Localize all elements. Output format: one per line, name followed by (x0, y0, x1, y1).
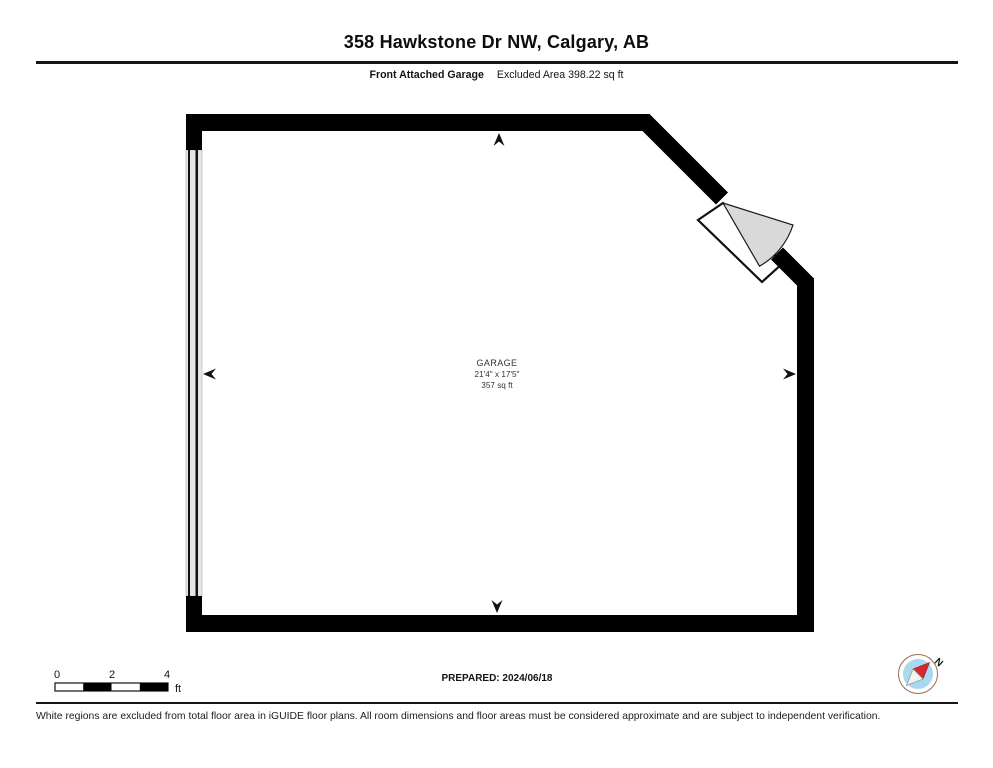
scale-tick-4: 4 (164, 669, 170, 681)
room-area: 357 sq ft (481, 381, 513, 390)
corner-block-bottom-left (186, 596, 202, 632)
room-dimensions: 21'4" x 17'5" (475, 370, 520, 379)
footer-disclaimer: White regions are excluded from total fl… (36, 711, 956, 722)
scale-tick-0: 0 (54, 669, 60, 681)
floorplan-page: 358 Hawkstone Dr NW, Calgary, AB Front A… (0, 0, 993, 768)
arrow-left-icon (203, 369, 216, 380)
wall-top-and-diagonal (186, 123, 722, 199)
arrow-down-icon (492, 600, 503, 613)
scale-unit-label: ft (175, 683, 181, 695)
room-label: GARAGE 21'4" x 17'5" 357 sq ft (475, 358, 520, 390)
prepared-date: PREPARED: 2024/06/18 (442, 673, 553, 684)
arrow-right-icon (783, 369, 796, 380)
footer-divider (36, 702, 958, 704)
floorplan-drawing: GARAGE 21'4" x 17'5" 357 sq ft 0 2 4 ft … (0, 0, 993, 768)
garage-door-icon (186, 150, 202, 596)
compass-icon: N (899, 655, 945, 694)
corner-block-top-left (186, 114, 202, 150)
wall-right-and-bottom (186, 254, 806, 624)
room-name: GARAGE (477, 358, 518, 368)
scale-bar: 0 2 4 ft (54, 669, 181, 695)
scale-tick-2: 2 (109, 669, 115, 681)
arrow-up-icon (494, 133, 505, 146)
